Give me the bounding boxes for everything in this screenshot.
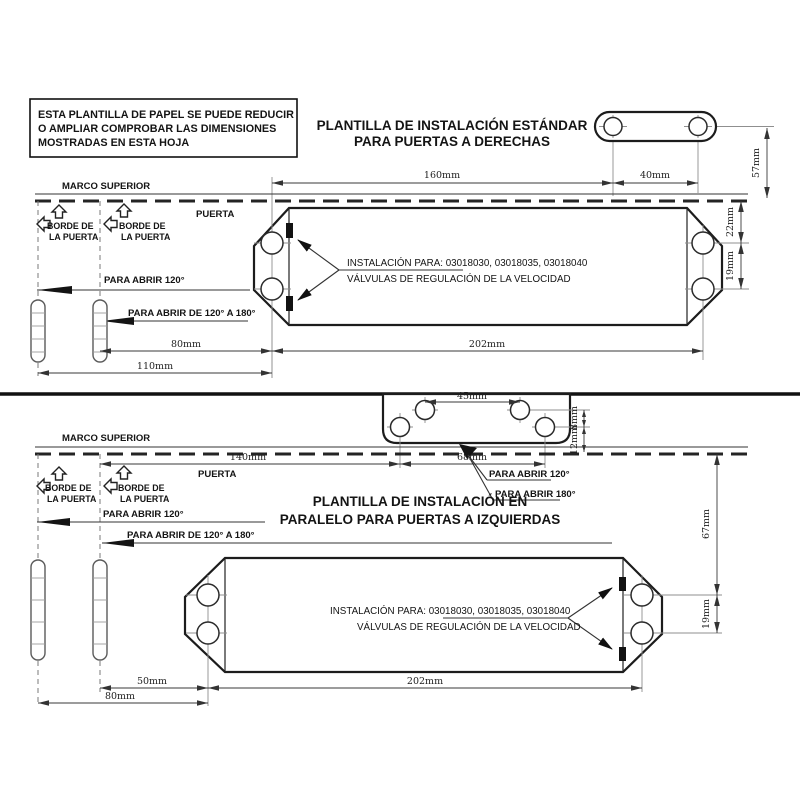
frame-label: MARCO SUPERIOR — [62, 433, 150, 444]
dim-label-45: 45mm — [457, 391, 487, 402]
dim-label-67: 67mm — [701, 509, 712, 539]
open-120-label: PARA ABRIR 120° — [103, 509, 184, 520]
dim-label-50: 50mm — [137, 676, 167, 687]
hinge-body — [31, 560, 45, 660]
bottom-right-dimensions: 67mm 19mm — [701, 454, 717, 633]
valves-note: VÁLVULAS DE REGULACIÓN DE LA VELOCIDAD — [347, 274, 571, 285]
bottom-closer-plate: INSTALACIÓN PARA: 03018030, 03018035, 03… — [185, 558, 722, 706]
valve-mark — [619, 577, 626, 591]
plate-hole — [692, 278, 714, 300]
dim-label-19: 19mm — [725, 251, 736, 281]
top-lower-dimensions: 80mm 202mm 110mm — [38, 339, 703, 373]
bottom-opening-120: PARA ABRIR 120° — [37, 509, 265, 526]
bottom-hinge-1 — [31, 560, 45, 660]
dim-label-40: 40mm — [640, 170, 670, 181]
dim-label-140: 140mm — [230, 452, 266, 463]
top-hinge-1 — [31, 300, 45, 362]
notice-line-1: ESTA PLANTILLA DE PAPEL SE PUEDE REDUCIR — [38, 109, 294, 121]
hinge-body — [93, 560, 107, 660]
door-edge-label-line1: BORDE DE — [118, 483, 165, 493]
dim-label-110: 110mm — [137, 361, 173, 372]
top-template-right-hand-doors: ESTA PLANTILLA DE PAPEL SE PUEDE REDUCIR… — [30, 99, 774, 378]
door-edge-label-line2: LA PUERTA — [120, 494, 170, 504]
top-title: PLANTILLA DE INSTALACIÓN ESTÁNDAR PARA P… — [317, 118, 588, 149]
arrow-left-icon — [104, 217, 117, 231]
top-title-line-1: PLANTILLA DE INSTALACIÓN ESTÁNDAR — [317, 118, 588, 133]
bracket-hole — [511, 401, 530, 420]
door-edge-label-line1: BORDE DE — [119, 221, 166, 231]
open-120-arrowhead — [37, 286, 72, 294]
door-edge-label-line2: LA PUERTA — [49, 232, 99, 242]
arrow-up-icon — [117, 466, 131, 479]
top-closer-plate: INSTALACIÓN PARA: 03018030, 03018035, 03… — [254, 208, 749, 378]
bottom-title-line-2: PARALELO PARA PUERTAS A IZQUIERDAS — [280, 512, 561, 527]
door-label: PUERTA — [196, 209, 234, 220]
valve-mark — [286, 223, 293, 238]
dim-label-202: 202mm — [407, 676, 443, 687]
plate-hole — [261, 278, 283, 300]
door-edge-label-line1: BORDE DE — [47, 221, 94, 231]
dim-label-57: 57mm — [751, 148, 762, 178]
top-right-dimensions: 22mm 19mm — [725, 201, 741, 289]
arrow-left-icon — [104, 479, 117, 493]
valve-mark — [619, 647, 626, 661]
bracket-hole — [604, 118, 622, 136]
notice-line-3: MOSTRADAS EN ESTA HOJA — [38, 137, 189, 149]
notice-line-2: O AMPLIAR COMPROBAR LAS DIMENSIONES — [38, 123, 276, 135]
plate-hole — [197, 584, 219, 606]
door-edge-label-line1: BORDE DE — [45, 483, 92, 493]
dim-label-12: 12mm — [569, 425, 580, 455]
valves-note: VÁLVULAS DE REGULACIÓN DE LA VELOCIDAD — [357, 622, 581, 633]
top-opening-120-180: PARA ABRIR DE 120° A 180° — [102, 308, 256, 325]
top-door-edge-callout-2: BORDE DE LA PUERTA — [104, 204, 171, 242]
arrow-up-icon — [52, 205, 66, 218]
top-title-line-2: PARA PUERTAS A DERECHAS — [354, 134, 550, 149]
plate-hole — [197, 622, 219, 644]
frame-label: MARCO SUPERIOR — [62, 181, 150, 192]
plate-hole — [261, 232, 283, 254]
bracket-hole — [689, 118, 707, 136]
dim-label-202: 202mm — [469, 339, 505, 350]
bottom-title-line-1: PLANTILLA DE INSTALACIÓN EN — [313, 494, 528, 509]
arrow-up-icon — [52, 467, 66, 480]
open-120-label: PARA ABRIR 120° — [489, 469, 570, 480]
door-label: PUERTA — [198, 469, 236, 480]
installation-template-drawing: ESTA PLANTILLA DE PAPEL SE PUEDE REDUCIR… — [0, 0, 800, 800]
top-door-edge-callout-1: BORDE DE LA PUERTA — [37, 205, 99, 242]
bracket-hole — [536, 418, 555, 437]
door-edge-label-line2: LA PUERTA — [47, 494, 97, 504]
hinge-body — [93, 300, 107, 362]
bottom-opening-120-180: PARA ABRIR DE 120° A 180° — [102, 530, 612, 547]
installation-note: INSTALACIÓN PARA: 03018030, 03018035, 03… — [330, 606, 571, 617]
plate-hole — [631, 584, 653, 606]
installation-note: INSTALACIÓN PARA: 03018030, 03018035, 03… — [347, 258, 588, 269]
bottom-door-edge-callout-2: BORDE DE LA PUERTA — [104, 466, 170, 504]
dim-label-19: 19mm — [701, 599, 712, 629]
dim-label-160: 160mm — [424, 170, 460, 181]
dim-label-80: 80mm — [171, 339, 201, 350]
arrow-up-icon — [117, 204, 131, 217]
notice-box: ESTA PLANTILLA DE PAPEL SE PUEDE REDUCIR… — [30, 99, 297, 157]
open-120-180-label: PARA ABRIR DE 120° A 180° — [128, 308, 256, 319]
hinge-body — [31, 300, 45, 362]
dim-label-80: 80mm — [105, 691, 135, 702]
open-120-label: PARA ABRIR 120° — [104, 275, 185, 286]
valve-mark — [286, 296, 293, 311]
plate-hole — [692, 232, 714, 254]
open-120-180-label: PARA ABRIR DE 120° A 180° — [127, 530, 255, 541]
open-120-180-arrowhead — [102, 539, 134, 547]
open-120-arrowhead — [37, 518, 70, 526]
bracket-hole — [391, 418, 410, 437]
bottom-title: PLANTILLA DE INSTALACIÓN EN PARALELO PAR… — [280, 494, 561, 527]
bottom-template-left-hand-doors: 45mm 8mm 12mm MARCO SUPERIOR PUERTA 140m… — [31, 391, 748, 706]
door-edge-label-line2: LA PUERTA — [121, 232, 171, 242]
bottom-lower-dimensions: 50mm 202mm 80mm — [38, 676, 642, 703]
bottom-hinge-2 — [93, 560, 107, 660]
bottom-door-edge-callout-1: BORDE DE LA PUERTA — [37, 467, 97, 504]
top-hinge-2 — [93, 300, 107, 362]
dim-label-22: 22mm — [725, 207, 736, 237]
bracket-hole — [416, 401, 435, 420]
template-sheet: ESTA PLANTILLA DE PAPEL SE PUEDE REDUCIR… — [0, 0, 800, 800]
top-opening-120: PARA ABRIR 120° — [37, 275, 250, 294]
plate-hole — [631, 622, 653, 644]
